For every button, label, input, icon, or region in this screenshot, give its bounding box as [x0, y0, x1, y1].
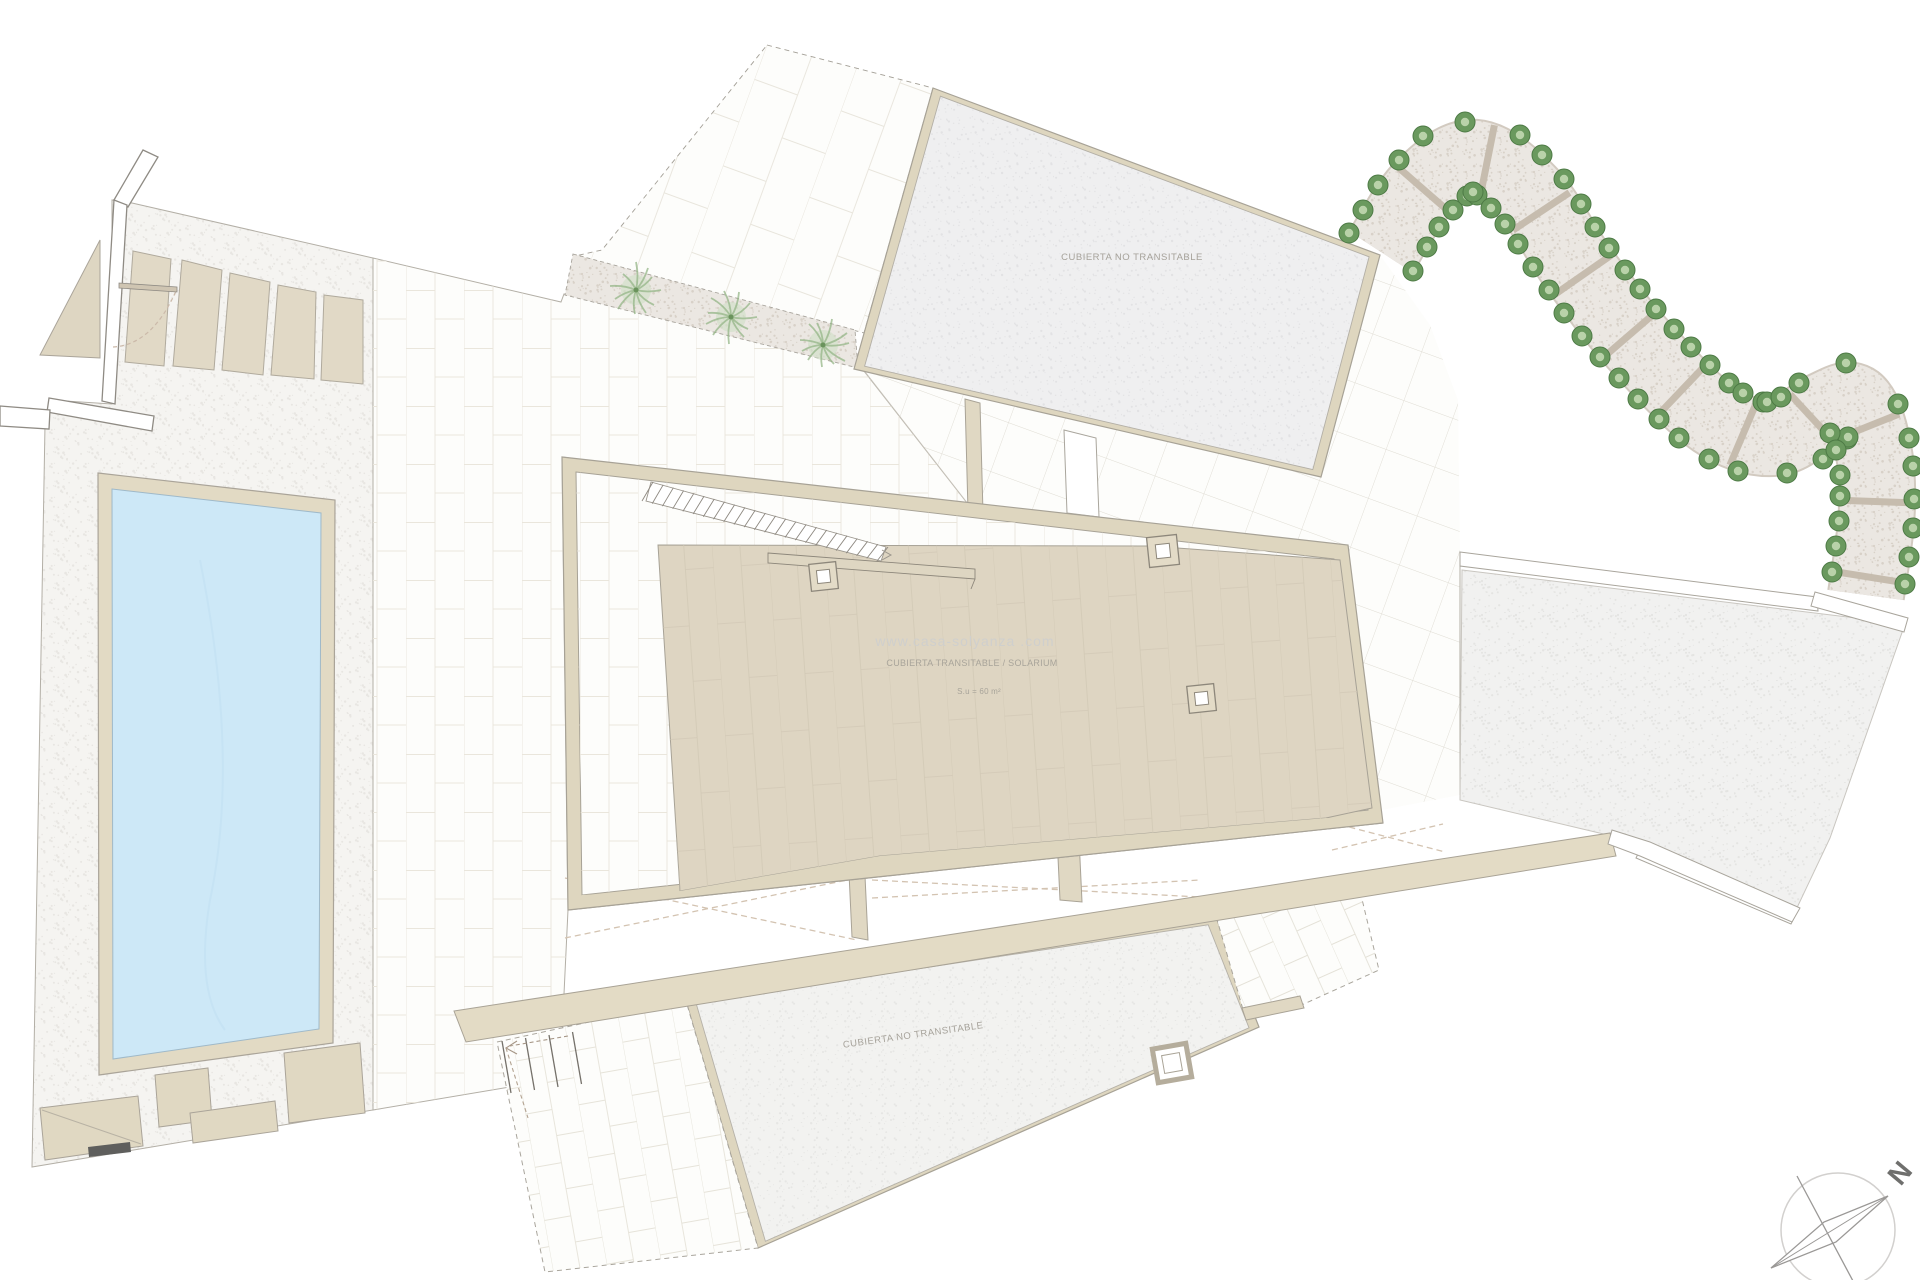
svg-text:S.u = 60 m²: S.u = 60 m²	[957, 687, 1001, 696]
svg-text:www.casa-solyanza .com: www.casa-solyanza .com	[874, 633, 1054, 649]
svg-text:CUBIERTA TRANSITABLE / SOLARIU: CUBIERTA TRANSITABLE / SOLARIUM	[886, 658, 1057, 668]
svg-text:CUBIERTA NO TRANSITABLE: CUBIERTA NO TRANSITABLE	[1061, 252, 1203, 263]
